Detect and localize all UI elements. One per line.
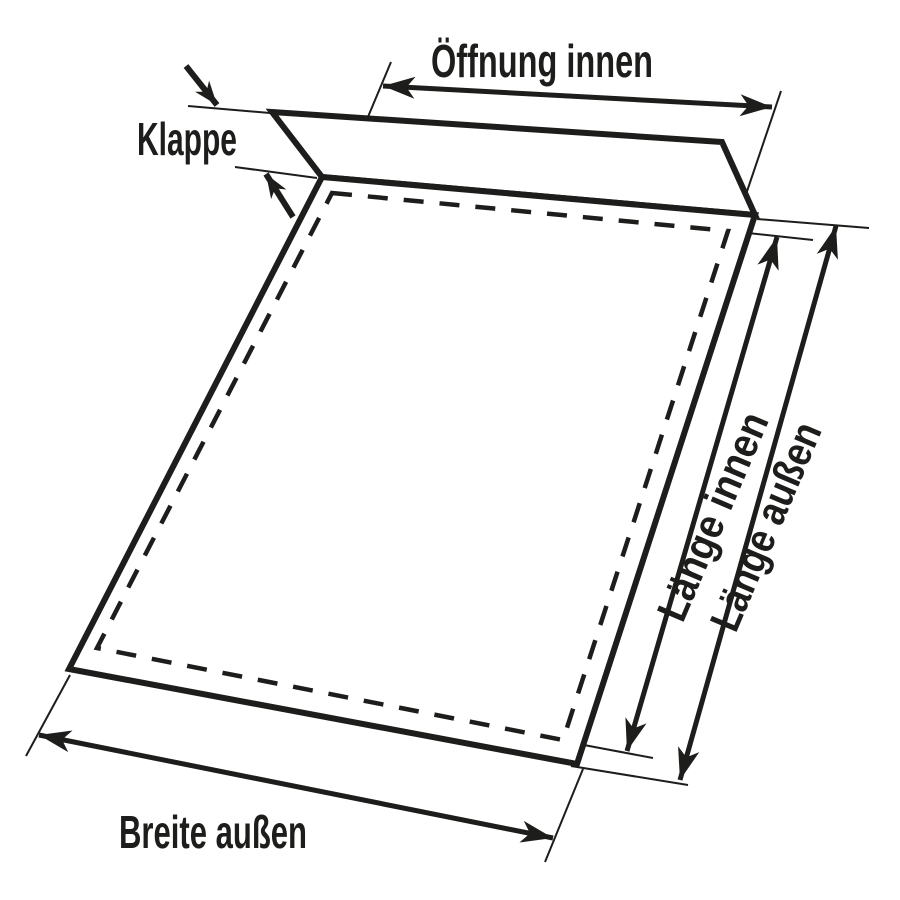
opening-inner-label: Öffnung innen — [431, 35, 653, 87]
flap-label: Klappe — [137, 113, 237, 165]
envelope-dimensions-diagram: Öffnung innen Klappe Länge innen Länge a… — [0, 0, 900, 900]
diagram-canvas: Öffnung innen Klappe Länge innen Länge a… — [0, 0, 900, 900]
width-outer-label: Breite außen — [119, 806, 307, 858]
